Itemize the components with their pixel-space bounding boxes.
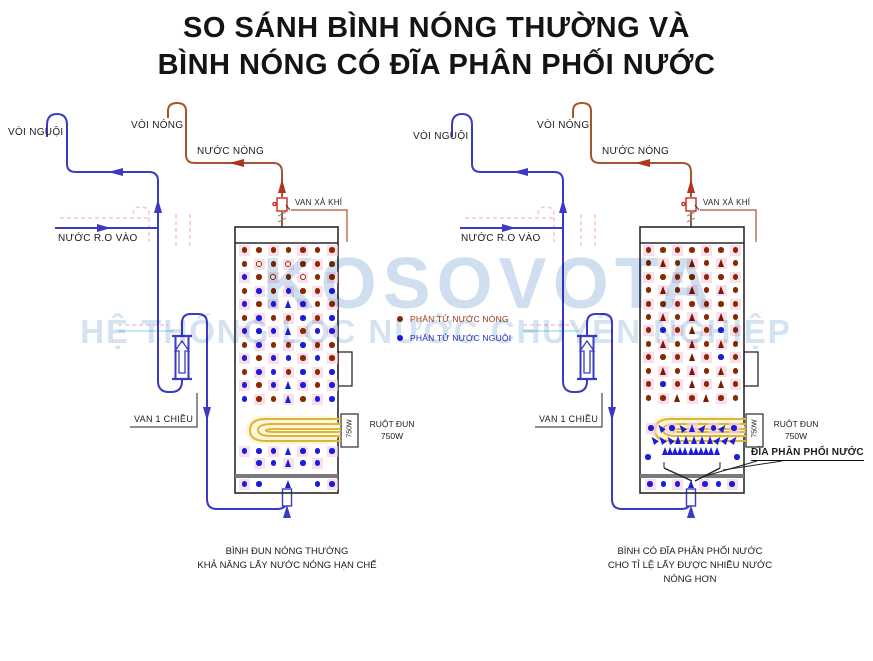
labels-layer: VÒI NGUỘI VÒI NÓNG NƯỚC NÓNG NƯỚC R.O VÀ… (0, 0, 873, 661)
right-hot-tap-label: VÒI NÓNG (537, 120, 589, 131)
left-heater-label: RUỘT ĐUN 750W (362, 418, 422, 442)
left-caption: BÌNH ĐUN NÓNG THƯỜNG KHẢ NĂNG LẤY NƯỚC N… (197, 545, 376, 573)
right-heater-label: RUỘT ĐUN 750W (766, 418, 826, 442)
left-air-valve-label: VAN XẢ KHÍ (295, 198, 342, 207)
legend-item-hot: PHÂN TỬ NƯỚC NÓNG (397, 314, 511, 324)
right-distribution-disc-label: ĐĨA PHÂN PHỐI NƯỚC (751, 447, 864, 461)
left-hot-water-label: NƯỚC NÓNG (197, 146, 264, 157)
right-cold-tap-label: VÒI NGUỘI (413, 131, 468, 142)
left-ro-inlet-label: NƯỚC R.O VÀO (58, 233, 138, 244)
left-hot-tap-label: VÒI NÓNG (131, 120, 183, 131)
legend-item-cold: PHÂN TỬ NƯỚC NGUỘI (397, 333, 511, 343)
right-air-valve-label: VAN XẢ KHÍ (703, 198, 750, 207)
left-check-valve-label: VAN 1 CHIỀU (134, 414, 193, 424)
comparison-diagram-page: SO SÁNH BÌNH NÓNG THƯỜNG VÀ BÌNH NÓNG CÓ… (0, 0, 873, 661)
right-caption: BÌNH CÓ ĐĨA PHÂN PHỐI NƯỚC CHO TỈ LỆ LẤY… (599, 545, 782, 587)
left-cold-tap-label: VÒI NGUỘI (8, 127, 63, 138)
right-hot-water-label: NƯỚC NÓNG (602, 146, 669, 157)
hot-particle-icon (397, 316, 403, 322)
right-check-valve-label: VAN 1 CHIỀU (539, 414, 598, 424)
right-ro-inlet-label: NƯỚC R.O VÀO (461, 233, 541, 244)
legend-cold-label: PHÂN TỬ NƯỚC NGUỘI (410, 333, 511, 343)
right-heater-power-rotated: 750W (751, 412, 758, 446)
legend: PHÂN TỬ NƯỚC NÓNG PHÂN TỬ NƯỚC NGUỘI (397, 314, 511, 343)
left-heater-power-rotated: 750W (346, 412, 353, 446)
cold-particle-icon (397, 335, 403, 341)
legend-hot-label: PHÂN TỬ NƯỚC NÓNG (410, 314, 509, 324)
